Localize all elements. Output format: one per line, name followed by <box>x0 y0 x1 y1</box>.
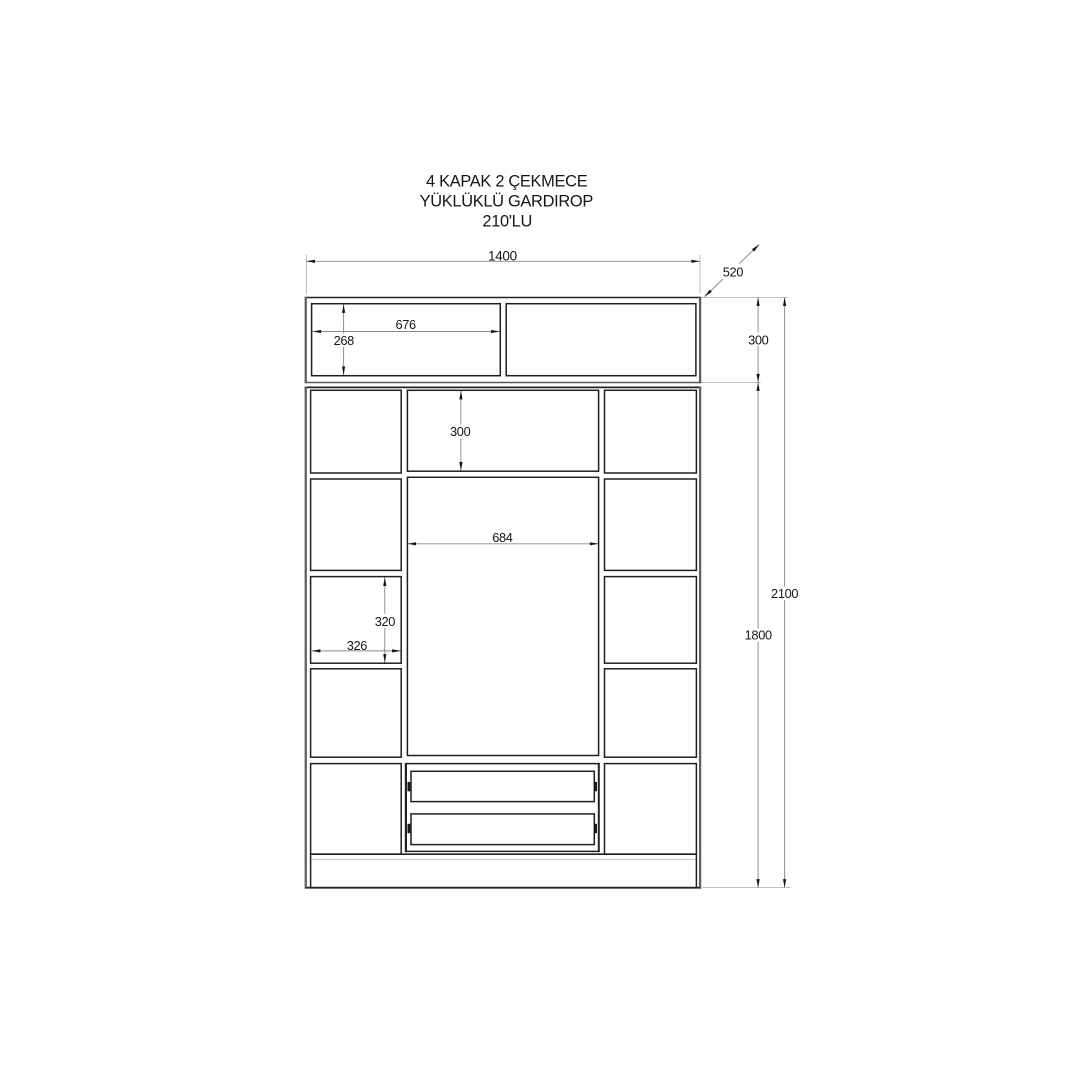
svg-text:300: 300 <box>450 424 471 439</box>
svg-text:1800: 1800 <box>745 628 772 643</box>
svg-text:520: 520 <box>723 264 744 279</box>
svg-text:4 KAPAK 2 ÇEKMECE: 4 KAPAK 2 ÇEKMECE <box>426 172 588 190</box>
svg-text:1400: 1400 <box>488 248 518 263</box>
svg-text:676: 676 <box>395 317 416 332</box>
svg-text:320: 320 <box>375 614 396 629</box>
svg-text:684: 684 <box>492 530 513 545</box>
svg-text:210'LU: 210'LU <box>482 212 532 230</box>
svg-text:268: 268 <box>334 333 355 348</box>
svg-text:326: 326 <box>347 638 368 653</box>
svg-text:300: 300 <box>748 332 769 347</box>
svg-text:YÜKLÜKLÜ GARDIROP: YÜKLÜKLÜ GARDIROP <box>420 192 594 210</box>
svg-text:2100: 2100 <box>771 586 798 601</box>
